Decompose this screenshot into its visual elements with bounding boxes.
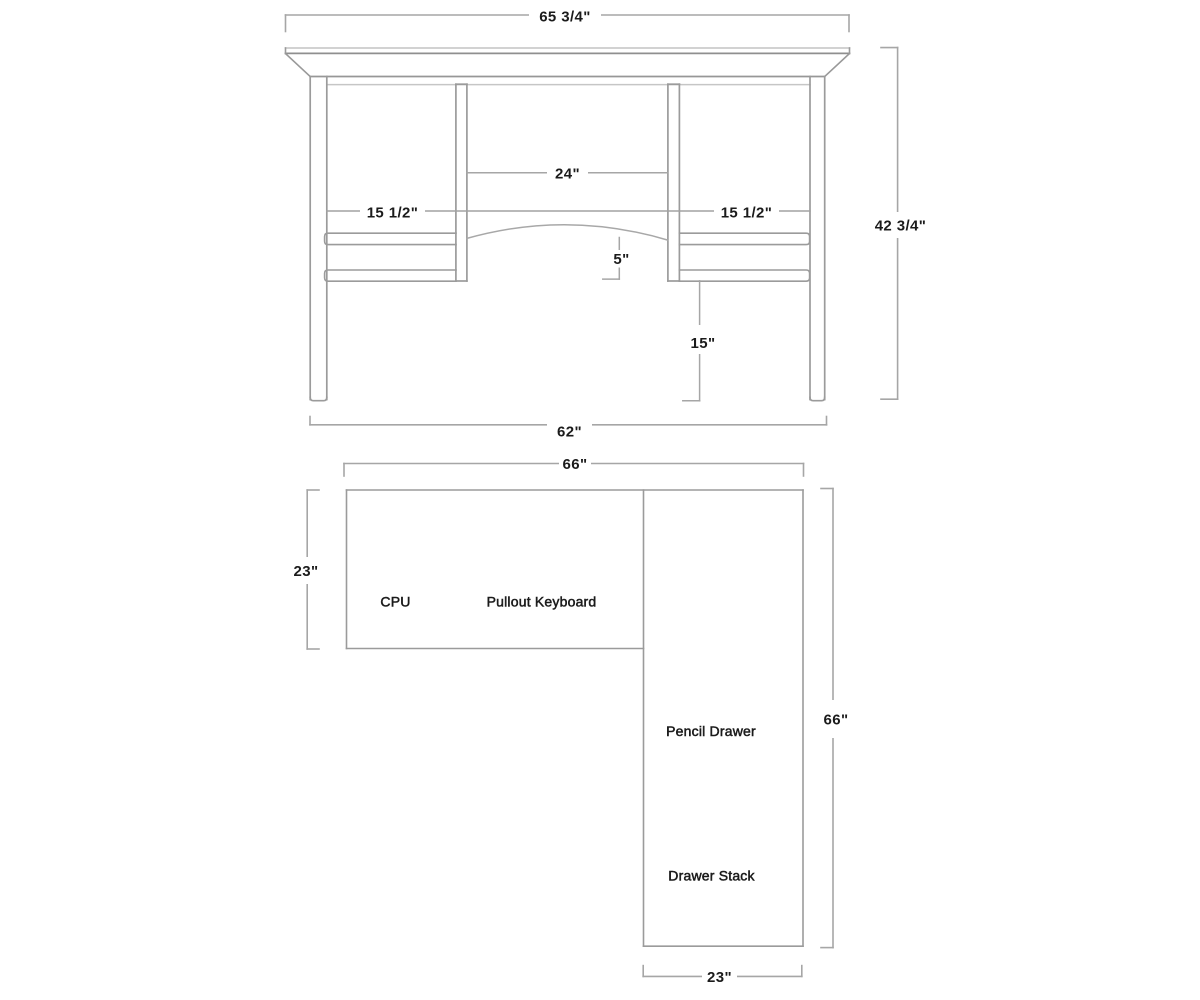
svg-text:CPU: CPU [380, 594, 410, 610]
svg-text:Pencil Drawer: Pencil Drawer [666, 723, 756, 739]
svg-text:65 3/4": 65 3/4" [539, 8, 591, 25]
svg-text:15 1/2": 15 1/2" [721, 204, 773, 221]
svg-text:15": 15" [691, 335, 716, 352]
svg-text:42 3/4": 42 3/4" [875, 217, 927, 234]
svg-text:23": 23" [707, 969, 732, 986]
svg-text:15 1/2": 15 1/2" [367, 204, 419, 221]
svg-text:Pullout Keyboard: Pullout Keyboard [487, 594, 597, 610]
svg-text:5": 5" [613, 251, 629, 268]
svg-text:66": 66" [563, 456, 588, 473]
svg-text:66": 66" [824, 711, 849, 728]
svg-text:Drawer Stack: Drawer Stack [668, 868, 755, 884]
svg-text:23": 23" [294, 563, 319, 580]
svg-text:62": 62" [557, 423, 582, 440]
svg-text:24": 24" [555, 165, 580, 182]
